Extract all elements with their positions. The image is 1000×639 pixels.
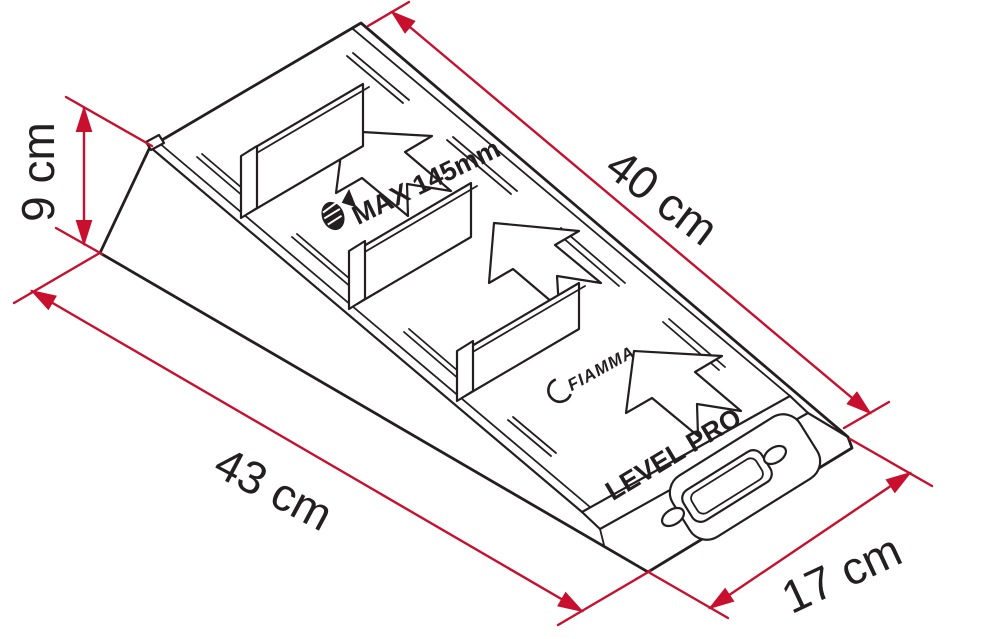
dimension-label-9cm: 9 cm xyxy=(12,122,64,222)
bulkhead-flange xyxy=(457,341,473,401)
extension-line xyxy=(650,573,728,618)
bulkhead-flange xyxy=(241,146,257,218)
extension-line xyxy=(850,439,932,486)
extension-line xyxy=(56,228,102,254)
bulkhead-flange xyxy=(349,241,365,309)
levelling-ramp-drawing: MAX 145mm FIAMMA LEVEL PRO 40 cm 9 cm xyxy=(0,0,1000,639)
dimension-label-43cm: 43 cm xyxy=(206,436,341,541)
dimension-label-17cm: 17 cm xyxy=(774,523,910,623)
extension-tick xyxy=(844,402,889,428)
ramp-body: MAX 145mm FIAMMA LEVEL PRO xyxy=(100,23,852,572)
extension-line xyxy=(14,254,98,303)
technical-drawing-page: MAX 145mm FIAMMA LEVEL PRO 40 cm 9 cm xyxy=(0,0,1000,639)
extension-line xyxy=(66,97,152,146)
extension-line xyxy=(558,571,650,625)
